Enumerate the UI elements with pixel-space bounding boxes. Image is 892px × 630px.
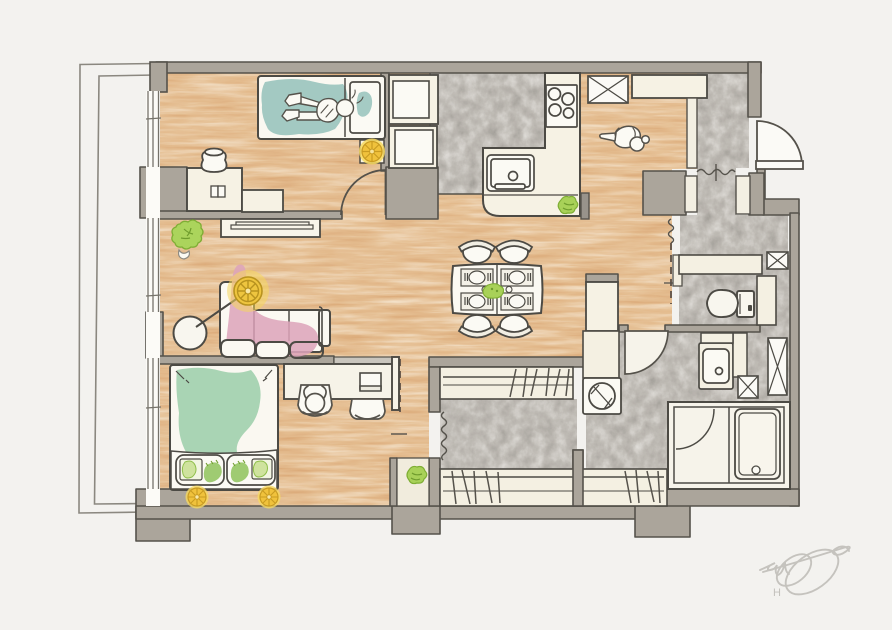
svg-text:H: H [773,587,781,599]
